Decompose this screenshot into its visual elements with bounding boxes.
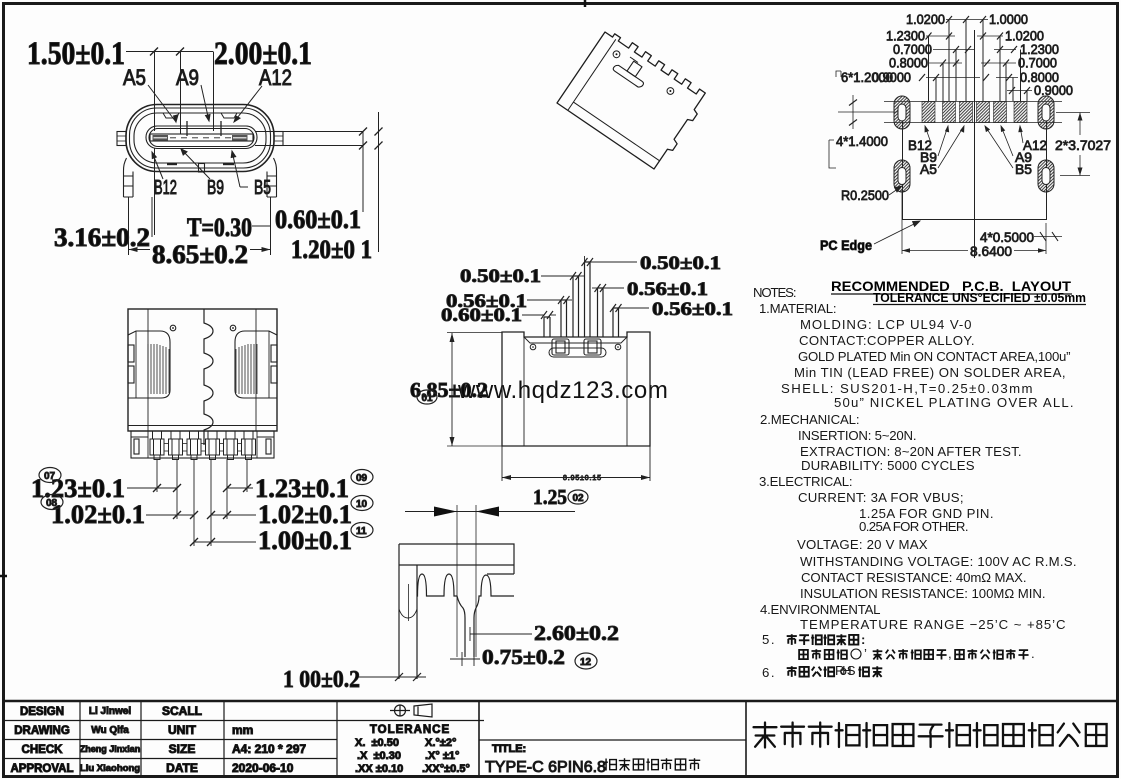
svg-text:T=0.30: T=0.30 [187, 213, 252, 242]
svg-text:DESIGN: DESIGN [20, 706, 64, 718]
svg-text:1.0000: 1.0000 [989, 12, 1028, 27]
svg-text:GOLD PLATED Min ON CONTACT ARE: GOLD PLATED Min ON CONTACT AREA,100u” [798, 349, 1071, 364]
svg-text:RoHS: RoHS [835, 663, 856, 678]
svg-text:mm: mm [232, 723, 253, 737]
svg-text:01: 01 [422, 393, 434, 404]
svg-text:www.hqdz123.com: www.hqdz123.com [457, 377, 668, 404]
svg-text:1.20±0 1: 1.20±0 1 [291, 235, 372, 264]
svg-text:MOLDING: LCP UL94 V-0: MOLDING: LCP UL94 V-0 [800, 317, 972, 332]
svg-text:,: , [948, 646, 952, 661]
svg-text:DRAWING: DRAWING [14, 725, 70, 737]
svg-text:02: 02 [573, 493, 585, 504]
svg-text:R0.2500: R0.2500 [841, 187, 889, 203]
svg-text:09: 09 [356, 473, 368, 484]
svg-text:1 00±0.2: 1 00±0.2 [283, 667, 360, 693]
svg-text:.X° ±1°: .X° ±1° [425, 750, 459, 762]
svg-text:1.MATERIAL:: 1.MATERIAL: [759, 301, 837, 316]
svg-text:1.25: 1.25 [533, 485, 567, 509]
svg-text:A5: A5 [920, 161, 937, 177]
svg-text:INSERTION: 5~20N.: INSERTION: 5~20N. [798, 428, 917, 443]
svg-text:0.56±0.1: 0.56±0.1 [627, 279, 708, 300]
svg-text:B12: B12 [154, 177, 177, 199]
svg-text:APPROVAL: APPROVAL [10, 763, 73, 775]
svg-text:A4: 210 * 297: A4: 210 * 297 [232, 742, 306, 756]
svg-text:.XX°±0.5°: .XX°±0.5° [422, 763, 470, 775]
svg-text:CONTACT RESISTANCE: 40mΩ MAX.: CONTACT RESISTANCE: 40mΩ MAX. [801, 570, 1027, 585]
svg-text:1.00±0.1: 1.00±0.1 [258, 526, 352, 555]
svg-text:A12: A12 [259, 65, 292, 90]
svg-text:8.65±0.2: 8.65±0.2 [152, 240, 248, 269]
svg-text:0.50±0.1: 0.50±0.1 [640, 253, 721, 274]
svg-text:08: 08 [46, 498, 58, 509]
svg-text:4*1.4000: 4*1.4000 [836, 133, 888, 149]
svg-text:8.95±0.15: 8.95±0.15 [563, 475, 601, 482]
svg-text:VOLTAGE: 20 V MAX: VOLTAGE: 20 V MAX [797, 537, 928, 552]
svg-text:10: 10 [356, 499, 368, 510]
svg-text:4.ENVIRONMENTAL: 4.ENVIRONMENTAL [760, 602, 881, 617]
svg-text:12: 12 [580, 657, 592, 668]
svg-text:TYPE-C 6PIN6.8: TYPE-C 6PIN6.8 [485, 759, 606, 776]
svg-text:Li Jinwei: Li Jinwei [89, 706, 131, 717]
svg-text:0.56±0.1: 0.56±0.1 [652, 299, 733, 320]
svg-text:Liu Xiaohong: Liu Xiaohong [80, 763, 140, 774]
svg-text:DATE: DATE [166, 761, 198, 775]
svg-text:WITHSTANDING VOLTAGE: 100V AC: WITHSTANDING VOLTAGE: 100V AC R.M.S. [800, 554, 1077, 569]
svg-text:07: 07 [44, 471, 56, 482]
svg-text:UNIT: UNIT [168, 723, 197, 737]
svg-text:5.: 5. [762, 632, 775, 647]
svg-text:2.MECHANICAL:: 2.MECHANICAL: [760, 412, 860, 427]
svg-text:0.60±0.1: 0.60±0.1 [441, 305, 522, 326]
svg-text:11: 11 [356, 526, 367, 537]
svg-text:CONTACT:COPPER ALLOY.: CONTACT:COPPER ALLOY. [799, 333, 975, 348]
svg-text:CURRENT: 3A FOR VBUS;: CURRENT: 3A FOR VBUS; [798, 490, 964, 505]
svg-text:TEMPERATURE RANGE −25’C ~ +85’: TEMPERATURE RANGE −25’C ~ +85’C [800, 617, 1066, 632]
svg-text:SHELL: SUS201-H,T=0.25±0.03mm: SHELL: SUS201-H,T=0.25±0.03mm [781, 381, 1033, 396]
svg-text:PC Edge: PC Edge [820, 237, 872, 253]
svg-text:0.9000: 0.9000 [1034, 83, 1073, 98]
svg-text:0.60±0.1: 0.60±0.1 [275, 205, 361, 234]
svg-text:EXTRACTION: 8~20N AFTER TEST.: EXTRACTION: 8~20N AFTER TEST. [800, 444, 1022, 459]
svg-text::: : [861, 632, 866, 647]
svg-text:.X ±0.30: .X ±0.30 [357, 750, 401, 762]
svg-text:1.0200: 1.0200 [906, 12, 945, 27]
svg-text:.XX ±0.10: .XX ±0.10 [355, 763, 403, 775]
svg-text:NOTES:: NOTES: [753, 285, 797, 300]
svg-text:CHECK: CHECK [22, 744, 64, 756]
svg-text:A5: A5 [123, 65, 146, 90]
svg-text:1.23±0.1: 1.23±0.1 [255, 474, 349, 503]
svg-text:B9: B9 [207, 177, 224, 199]
svg-text:3.ELECTRICAL:: 3.ELECTRICAL: [759, 474, 853, 489]
svg-text:X.°±2°: X.°±2° [425, 737, 456, 749]
svg-text:Zheng Jinxian: Zheng Jinxian [80, 744, 141, 754]
svg-text:TOLERANCE: TOLERANCE [370, 724, 450, 736]
svg-text:2.60±0.2: 2.60±0.2 [534, 621, 619, 645]
svg-text:B5: B5 [254, 177, 271, 199]
svg-text:8.6400: 8.6400 [970, 243, 1012, 259]
svg-text:SCALL: SCALL [162, 704, 202, 718]
svg-text:’: ’ [864, 646, 867, 661]
svg-text:0.50±0.1: 0.50±0.1 [460, 266, 541, 287]
svg-text:A9: A9 [176, 65, 199, 90]
svg-text:Wu Qifa: Wu Qifa [91, 725, 129, 736]
svg-text:.: . [1031, 646, 1035, 661]
svg-text:0.9000: 0.9000 [872, 70, 911, 85]
svg-text:50u” NICKEL PLATING OVER ALL.: 50u” NICKEL PLATING OVER ALL. [834, 395, 1074, 410]
svg-text:6.: 6. [762, 665, 775, 680]
svg-text:INSULATION RESISTANCE: 100MΩ M: INSULATION RESISTANCE: 100MΩ MIN. [800, 586, 1046, 601]
svg-text:DURABILITY: 5000 CYCLES: DURABILITY: 5000 CYCLES [801, 458, 975, 473]
svg-text:0.75±0.2: 0.75±0.2 [482, 645, 565, 669]
svg-text:B5: B5 [1015, 161, 1032, 177]
svg-text:1.02±0.1: 1.02±0.1 [51, 500, 145, 529]
svg-text:2020-06-10: 2020-06-10 [232, 761, 294, 775]
svg-text:0.8000: 0.8000 [889, 56, 928, 71]
svg-text:TITLE:: TITLE: [492, 743, 526, 755]
svg-text:0.7000: 0.7000 [1018, 56, 1057, 71]
svg-text:2*3.7027: 2*3.7027 [1055, 137, 1111, 153]
svg-text:1.02±0.1: 1.02±0.1 [258, 500, 352, 529]
svg-text:1.50±0.1: 1.50±0.1 [27, 36, 125, 72]
svg-text:0.25A FOR OTHER.: 0.25A FOR OTHER. [859, 519, 969, 534]
svg-text:Min TIN (LEAD FREE) ON SOLDER: Min TIN (LEAD FREE) ON SOLDER AREA, [794, 365, 1066, 380]
svg-text:SIZE: SIZE [169, 742, 196, 756]
svg-text:TOLERANCE UNS°ECIFIED ±0.05mm: TOLERANCE UNS°ECIFIED ±0.05mm [873, 291, 1086, 305]
svg-text:X. ±0.50: X. ±0.50 [355, 737, 399, 749]
